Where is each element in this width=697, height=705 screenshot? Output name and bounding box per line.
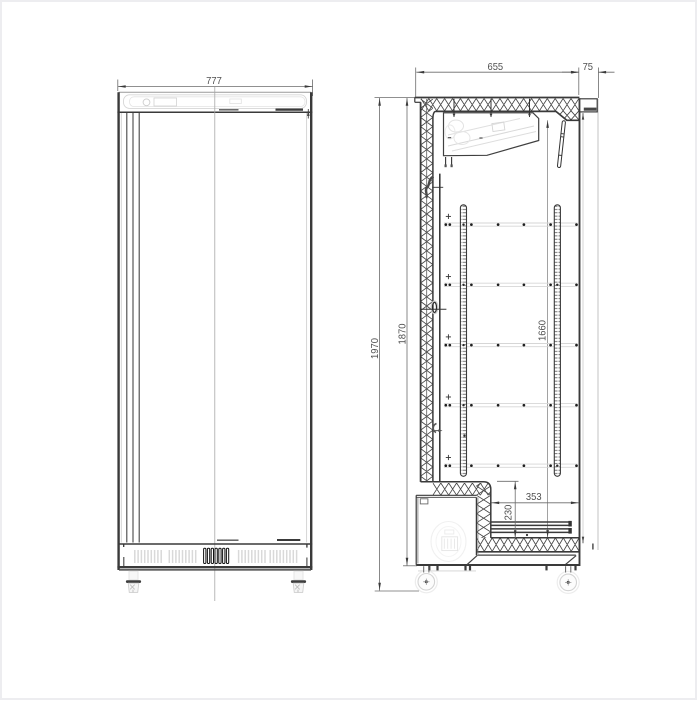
svg-text:230: 230	[503, 504, 514, 520]
svg-text:777: 777	[206, 76, 222, 87]
svg-text:1660: 1660	[537, 319, 548, 340]
svg-text:655: 655	[487, 62, 503, 73]
svg-text:75: 75	[583, 62, 593, 73]
svg-text:1970: 1970	[370, 337, 381, 358]
svg-text:1870: 1870	[397, 323, 408, 344]
svg-text:353: 353	[526, 492, 542, 503]
